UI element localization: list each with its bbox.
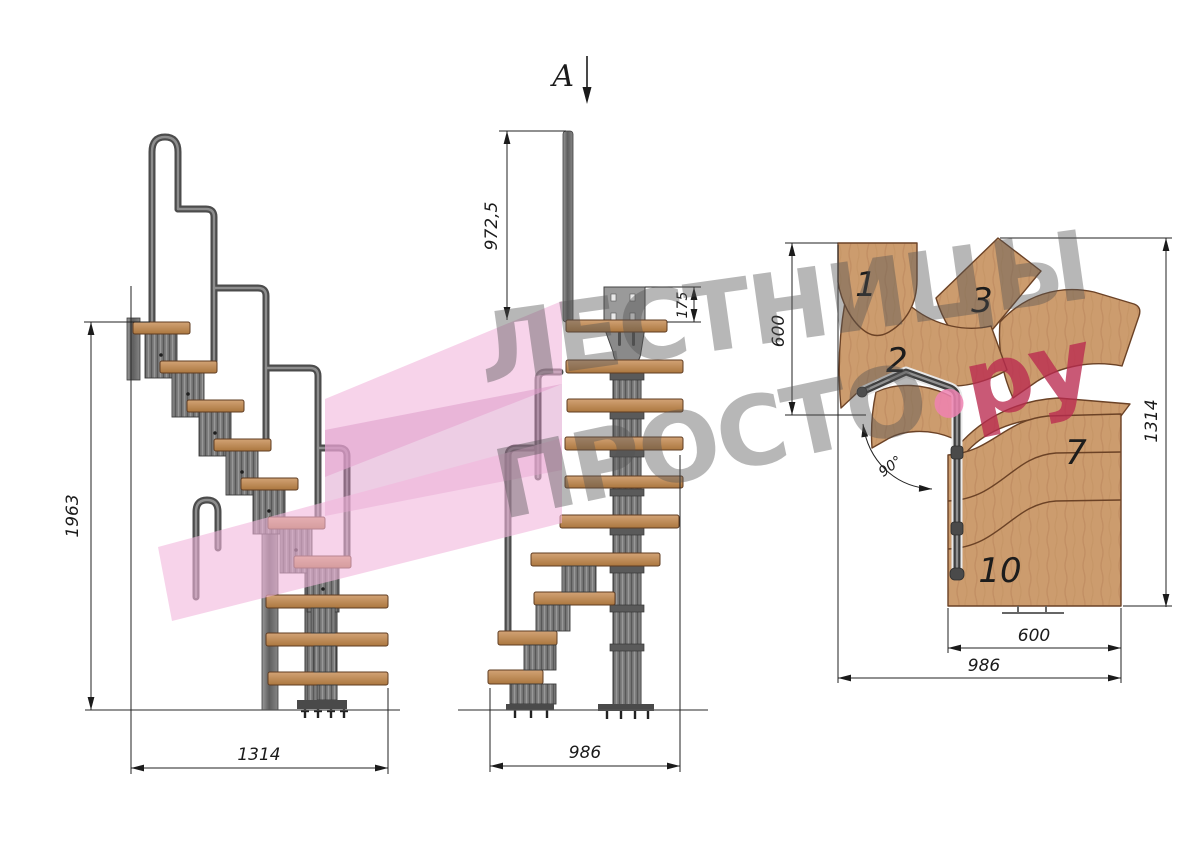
anchor-bolts-front (515, 710, 648, 719)
base-plate-side (297, 700, 347, 709)
technical-drawing-canvas: 1963 1314 A (0, 0, 1200, 849)
section-arrowhead-icon (583, 87, 592, 104)
dim-side-length: 1314 (237, 745, 280, 765)
dim-plan-depth: 1314 (1142, 399, 1162, 442)
plan-step-number-1: 1 (855, 265, 877, 305)
plan-step-5 (1000, 290, 1140, 398)
dim-rail-height: 972,5 (482, 202, 502, 251)
plan-base-mark (1002, 606, 1064, 613)
handrail-post-front (563, 131, 573, 322)
dim-front-width: 986 (569, 743, 602, 763)
dim-plan-step-width: 600 (1018, 626, 1050, 646)
dim-plan-overall-width: 986 (968, 656, 1001, 676)
dim-plate-offset: 175 (675, 292, 691, 319)
plan-view: 1 2 3 7 10 90° 600 1314 600 986 (769, 238, 1172, 683)
plan-step-number-3: 3 (971, 281, 993, 321)
dim-side-height: 1963 (63, 494, 83, 537)
plan-step-number-7: 7 (1065, 433, 1087, 473)
watermark-pink-shapes (158, 301, 562, 621)
plan-step-4 (872, 385, 959, 448)
section-arrow (583, 56, 592, 104)
staircase-drawing-page: 1963 1314 A (0, 0, 1200, 849)
dim-turn-angle: 90° (876, 453, 905, 481)
section-marker-label: A (549, 59, 574, 94)
plan-step-number-10: 10 (978, 551, 1021, 591)
plan-step-number-2: 2 (886, 341, 908, 381)
dim-plan-entry-width: 600 (769, 315, 789, 347)
